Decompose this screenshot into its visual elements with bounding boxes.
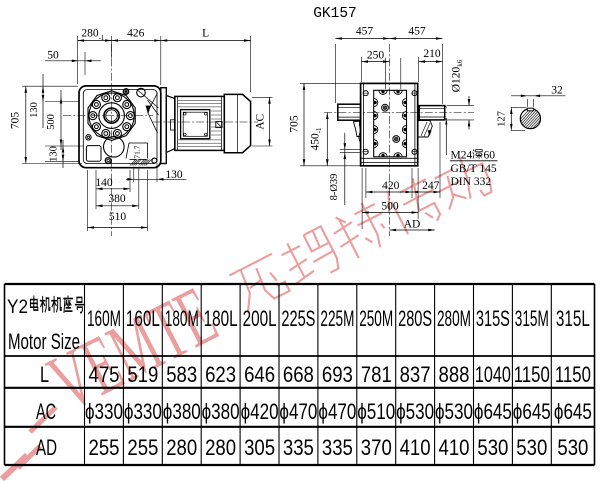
svg-text:DIN 332: DIN 332 — [451, 176, 492, 188]
svg-text:623: 623 — [205, 362, 236, 387]
svg-text:1040: 1040 — [475, 362, 511, 387]
svg-text:130: 130 — [165, 169, 183, 181]
svg-text:305: 305 — [244, 435, 275, 460]
svg-text:L: L — [40, 362, 49, 387]
svg-text:ϕ330: ϕ330 — [124, 399, 162, 424]
svg-text:530: 530 — [557, 435, 588, 460]
svg-text:280: 280 — [81, 28, 99, 40]
svg-text:127: 127 — [496, 111, 507, 127]
svg-text:247: 247 — [422, 180, 440, 192]
svg-text:GB/T 145: GB/T 145 — [451, 163, 497, 175]
svg-text:280: 280 — [166, 435, 197, 460]
svg-text:335: 335 — [322, 435, 353, 460]
svg-text:71.7: 71.7 — [133, 145, 142, 158]
svg-text:130: 130 — [29, 102, 40, 118]
svg-text:475: 475 — [89, 362, 120, 387]
svg-text:693: 693 — [322, 362, 353, 387]
svg-text:50: 50 — [47, 50, 59, 62]
svg-text:ϕ530: ϕ530 — [396, 399, 434, 424]
svg-text:250: 250 — [367, 49, 385, 61]
svg-text:180M: 180M — [165, 306, 199, 331]
svg-text:130: 130 — [49, 146, 60, 162]
svg-text:M24: M24 — [451, 150, 473, 162]
svg-text:781: 781 — [361, 362, 392, 387]
svg-text:60: 60 — [484, 150, 496, 162]
svg-text:ϕ420: ϕ420 — [241, 399, 279, 424]
svg-text:380: 380 — [108, 193, 126, 205]
svg-text:210: 210 — [423, 48, 441, 60]
svg-text:L: L — [202, 28, 209, 40]
svg-text:510: 510 — [109, 211, 127, 223]
svg-text:ϕ510: ϕ510 — [357, 399, 395, 424]
svg-text:160L: 160L — [126, 306, 160, 331]
svg-text:ϕ380: ϕ380 — [202, 399, 240, 424]
svg-text:888: 888 — [439, 362, 470, 387]
svg-text:583: 583 — [166, 362, 197, 387]
svg-text:AD: AD — [404, 218, 421, 230]
svg-text:705: 705 — [10, 112, 22, 130]
svg-text:420: 420 — [382, 180, 400, 192]
svg-text:ϕ645: ϕ645 — [513, 399, 551, 424]
svg-text:370: 370 — [361, 435, 392, 460]
svg-text:ϕ530: ϕ530 — [435, 399, 473, 424]
svg-text:255: 255 — [127, 435, 158, 460]
svg-text:AC: AC — [254, 113, 266, 129]
svg-text:1150: 1150 — [514, 362, 550, 387]
svg-text:ϕ470: ϕ470 — [279, 399, 317, 424]
svg-text:705: 705 — [289, 115, 301, 133]
svg-text:500: 500 — [46, 114, 57, 130]
svg-text:8-Ø39: 8-Ø39 — [329, 174, 340, 201]
svg-text:500: 500 — [381, 201, 399, 213]
svg-text:410: 410 — [439, 435, 470, 460]
svg-text:AC: AC — [36, 399, 56, 424]
svg-text:457: 457 — [408, 26, 426, 38]
svg-text:646: 646 — [244, 362, 275, 387]
svg-text:410: 410 — [400, 435, 431, 460]
svg-text:GK157: GK157 — [313, 6, 357, 22]
svg-text:250M: 250M — [359, 306, 393, 331]
svg-text:Ø120k6: Ø120k6 — [451, 59, 465, 92]
svg-text:32: 32 — [551, 85, 563, 97]
svg-text:426: 426 — [127, 28, 145, 40]
svg-text:519: 519 — [127, 362, 158, 387]
svg-text:315S: 315S — [476, 306, 510, 331]
svg-text:280S: 280S — [398, 306, 432, 331]
svg-text:315L: 315L — [556, 306, 590, 331]
svg-text:AD: AD — [36, 435, 57, 460]
svg-text:335: 335 — [283, 435, 314, 460]
svg-text:Y2: Y2 — [7, 297, 28, 318]
svg-text:180L: 180L — [204, 306, 238, 331]
svg-text:255: 255 — [89, 435, 120, 460]
svg-text:225S: 225S — [281, 306, 315, 331]
svg-text:668: 668 — [283, 362, 314, 387]
svg-text:1150: 1150 — [555, 362, 591, 387]
svg-text:530: 530 — [477, 435, 508, 460]
svg-text:457: 457 — [356, 26, 374, 38]
svg-text:530: 530 — [516, 435, 547, 460]
svg-text:280M: 280M — [437, 306, 471, 331]
svg-text:450-1: 450-1 — [310, 127, 324, 151]
svg-text:280: 280 — [205, 435, 236, 460]
svg-text:225M: 225M — [320, 306, 354, 331]
svg-text:837: 837 — [400, 362, 431, 387]
svg-text:ϕ380: ϕ380 — [163, 399, 201, 424]
svg-text:Motor Size: Motor Size — [8, 329, 80, 354]
svg-text:315M: 315M — [515, 306, 549, 331]
svg-text:160M: 160M — [87, 306, 121, 331]
svg-text:ϕ330: ϕ330 — [85, 399, 123, 424]
svg-text:140: 140 — [95, 177, 113, 189]
svg-text:ϕ645: ϕ645 — [554, 399, 592, 424]
svg-text:ϕ470: ϕ470 — [318, 399, 356, 424]
svg-text:ϕ645: ϕ645 — [474, 399, 512, 424]
svg-text:200L: 200L — [243, 306, 277, 331]
svg-text:-1: -1 — [99, 34, 105, 42]
